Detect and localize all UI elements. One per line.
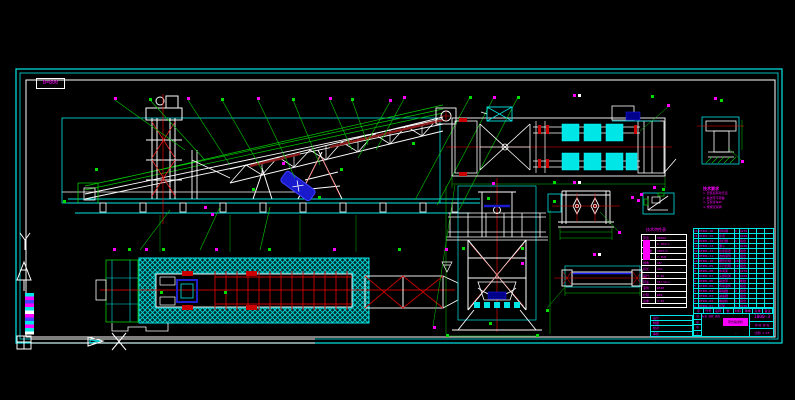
pulley-front-view [548, 191, 620, 240]
plan-x-brace [480, 124, 530, 170]
param-value: 1.25m/s [656, 241, 686, 246]
bom-table: 16 DTⅡ01-16 导料槽 1 Q235 15 DTⅡ01-15 护罩 1 … [693, 228, 774, 308]
x-mark [112, 333, 126, 350]
material-dash: - [726, 330, 746, 337]
param-value: 200t/h [656, 248, 686, 253]
param-label: 总重 [642, 298, 656, 303]
param-value: φ89 [656, 292, 686, 297]
param-table-title: 技术特性表 [646, 227, 666, 232]
title-block-signature-column: 制描审工 [694, 314, 702, 337]
param-value: 3.8t [656, 298, 686, 303]
param-label: 滚筒 [642, 285, 656, 290]
title-block-rev-strip: 标记 处数 更改 [702, 315, 720, 319]
param-merged-cell [643, 240, 650, 260]
level-mark [442, 262, 452, 272]
param-row: 总重 3.8t [642, 298, 686, 304]
param-value: 7.5kW [656, 254, 686, 259]
cad-drawing-canvas[interactable]: B=800 技术要求 1.安装后转动灵活2.输送带不跑偏3.空载试车2h4.按规… [0, 0, 795, 400]
sheet-count: 共1张 第1张 [749, 322, 774, 329]
head-section-plan [446, 106, 676, 188]
param-value: φ500 [656, 285, 686, 290]
param-value: 800mm [656, 235, 686, 240]
ground-posts [100, 203, 458, 212]
param-label: 提升 [642, 273, 656, 278]
param-value: 21m [656, 266, 686, 271]
param-value: 59r/min [656, 279, 686, 284]
tail-pulley [280, 170, 317, 202]
param-label: 机长 [642, 266, 656, 271]
plan-x-frames [365, 276, 458, 308]
datum-triangle [17, 262, 31, 291]
title-block: 制描审工 标记 处数 更改 带式输送机 1000-3 共1张 第1张 比例 1:… [693, 313, 774, 337]
notes-lines: 1.安装后转动灵活2.输送带不跑偏3.空载试车2h4.按规定润滑 [703, 191, 739, 209]
plan-view [96, 258, 458, 331]
note-line: 4.按规定润滑 [703, 205, 739, 210]
break-symbol [20, 233, 30, 250]
technical-notes: 技术要求 1.安装后转动灵活2.输送带不跑偏3.空载试车2h4.按规定润滑 [703, 186, 739, 209]
far-right-detail [697, 117, 744, 164]
scale-cell: 比例 1:25 [749, 329, 774, 337]
scale-bar [25, 293, 34, 335]
roller-side-view [547, 266, 650, 308]
param-label: 转速 [642, 279, 656, 284]
drawing-title-highlighted: 带式输送机 [723, 318, 748, 326]
crossed-box-symbol [481, 107, 512, 121]
revision-row: 审核 [651, 332, 692, 337]
param-label: 托辊 [642, 292, 656, 297]
support-tower [146, 96, 182, 199]
frame-corner-label: B=800 [36, 78, 65, 89]
param-label: 倾角 [642, 260, 656, 265]
head-station-elevation [433, 178, 550, 336]
small-corner-detail [643, 193, 674, 214]
param-value: 18° [656, 260, 686, 265]
param-value: 5.4m [656, 273, 686, 278]
signature-cell: 工 [694, 331, 701, 337]
revision-table: 设计 制图 校对 审核 [650, 315, 693, 337]
drawing-number: 1000-3 [749, 314, 774, 322]
cad-linework [0, 0, 795, 400]
